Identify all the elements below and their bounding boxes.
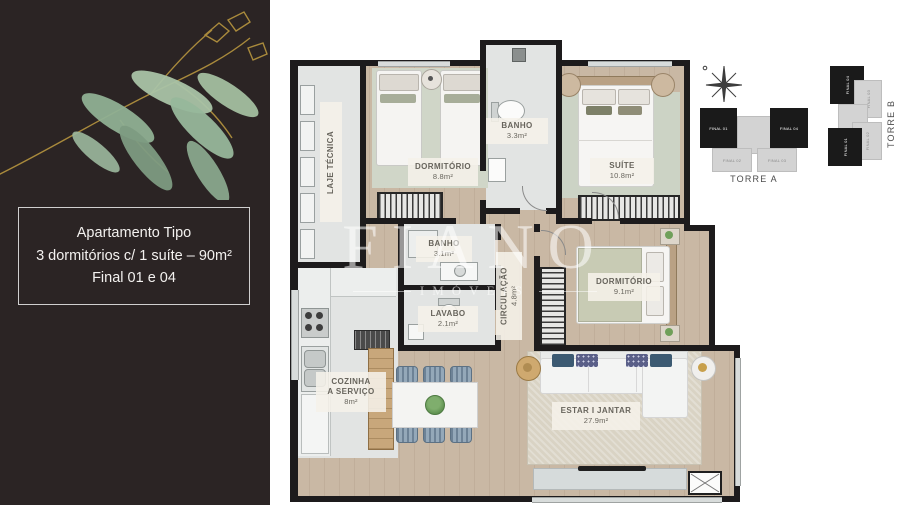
wall <box>534 345 715 351</box>
wall <box>290 60 298 502</box>
burner <box>316 324 323 331</box>
room-label-circulacao: CIRCULAÇÃO 4.8m² <box>496 252 522 340</box>
accent-pillow <box>618 106 642 115</box>
keyplan-unit: FINAL 03 <box>757 148 797 172</box>
keyplan-unit-highlighted: FINAL 01 <box>700 108 737 148</box>
bed-cushion <box>380 94 416 103</box>
living-window <box>735 358 741 486</box>
wall <box>298 262 366 268</box>
utility-shelf <box>300 157 315 187</box>
room-label-suite: SUÍTE 10.8m² <box>590 158 654 184</box>
tower-key-plan: FINAL 01 FINAL 04 FINAL 02 FINAL 03 TORR… <box>690 56 900 201</box>
dorm1-window <box>378 61 450 67</box>
apartment-type-title: Apartamento Tipo <box>77 222 191 244</box>
utility-shelf <box>300 121 315 151</box>
burner <box>316 312 323 319</box>
room-label-banho-2: BANHO 3.1m² <box>416 236 472 262</box>
bathroom-sink <box>488 158 506 182</box>
keyplan-unit: FINAL 02 <box>712 148 752 172</box>
wardrobe <box>377 192 443 220</box>
burner <box>305 312 312 319</box>
room-label-laje-tecnica: LAJE TÉCNICA <box>320 102 342 222</box>
blanket-fold <box>578 140 652 141</box>
wall <box>534 224 540 232</box>
utility-shelf <box>300 193 315 223</box>
dishwasher <box>354 330 390 350</box>
wall <box>534 256 540 351</box>
wall <box>556 60 562 224</box>
apartment-info-box: Apartamento Tipo 3 dormitórios c/ 1 suít… <box>18 207 250 305</box>
eucalyptus-branch-illustration <box>0 0 270 200</box>
torre-a-label: TORRE A <box>700 174 808 184</box>
wall <box>360 60 366 265</box>
side-table-decor <box>698 363 707 372</box>
wall <box>486 208 520 214</box>
utility-shelf <box>300 229 315 259</box>
room-label-banho-1: BANHO 3.3m² <box>486 118 548 144</box>
bed-cushion <box>444 94 480 103</box>
plant <box>665 231 673 239</box>
tv <box>578 466 646 471</box>
wall <box>709 225 715 351</box>
living-sliding-door <box>532 497 722 503</box>
room-label-dormitorio-1: DORMITÓRIO 8.8m² <box>408 158 478 186</box>
suite-window <box>588 61 672 67</box>
pillow <box>443 74 483 91</box>
nightstand <box>651 73 675 97</box>
ac-unit-box <box>688 471 722 495</box>
room-label-cozinha: COZINHA A SERVIÇO 8m² <box>316 372 386 412</box>
lamp <box>428 76 433 81</box>
sofa-cushion <box>650 354 672 367</box>
accent-pillow <box>586 106 612 115</box>
wall <box>546 208 556 214</box>
apartment-description: 3 dormitórios c/ 1 suíte – 90m² <box>36 245 232 267</box>
sofa-cushion <box>576 354 598 367</box>
wall <box>562 218 592 224</box>
utility-shelf <box>300 85 315 115</box>
room-label-dormitorio-2: DORMITÓRIO 9.1m² <box>588 273 660 301</box>
wall <box>620 218 684 224</box>
wall <box>495 224 501 240</box>
sink-bowl <box>454 265 466 277</box>
side-table-decor <box>523 363 532 372</box>
wall <box>366 218 456 224</box>
keyplan-unit-highlighted: FINAL 04 <box>770 108 808 148</box>
wall <box>684 60 690 230</box>
pillow <box>582 89 616 105</box>
pillow <box>618 89 650 105</box>
room-label-lavabo: LAVABO 2.1m² <box>418 306 478 332</box>
wall <box>404 345 495 351</box>
left-panel: Apartamento Tipo 3 dormitórios c/ 1 suít… <box>0 0 270 505</box>
sofa-cushion <box>626 354 648 367</box>
wardrobe <box>540 267 566 347</box>
torre-b-label: TORRE B <box>886 84 898 164</box>
tv-console <box>533 468 687 490</box>
shower-drain <box>512 48 526 62</box>
plant <box>665 328 673 336</box>
kitchen-window <box>291 290 299 380</box>
keyplan-unit-highlighted: FINAL 01 <box>828 128 862 166</box>
sofa-cushion <box>552 354 574 367</box>
sofa-chaise <box>642 358 688 418</box>
wall <box>404 285 495 290</box>
compass-north-icon <box>698 60 742 108</box>
apartment-units: Final 01 e 04 <box>92 267 176 289</box>
pillow <box>379 74 419 91</box>
real-estate-floor-plan-page: { "panel": { "line1": "Apartamento Tipo"… <box>0 0 900 505</box>
table-plant <box>425 395 445 415</box>
wall <box>480 40 562 45</box>
sink-bowl <box>304 350 326 368</box>
burner <box>305 324 312 331</box>
room-label-estar-jantar: ESTAR I JANTAR 27.9m² <box>552 402 640 430</box>
floor-plan: LAJE TÉCNICA DORMITÓRIO 8.8m² BANHO 3.3m… <box>290 40 748 502</box>
